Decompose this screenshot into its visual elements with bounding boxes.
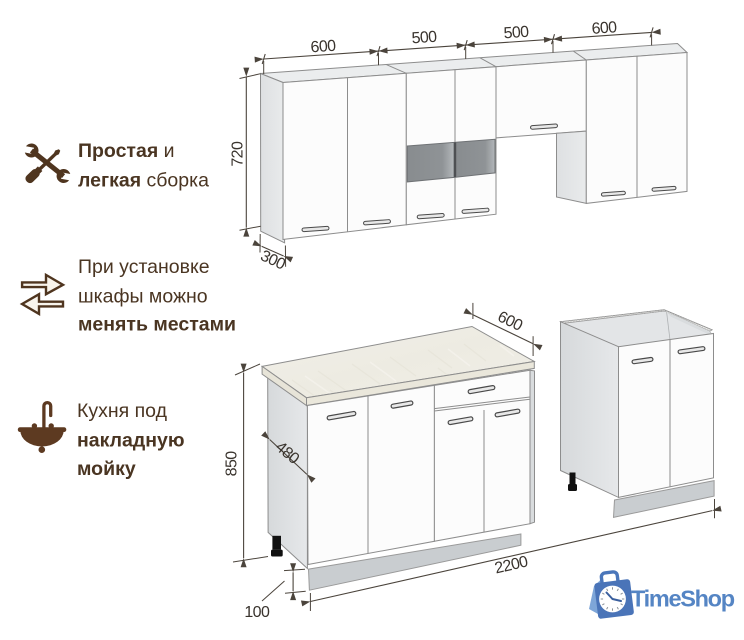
svg-text:500: 500 xyxy=(411,29,438,48)
svg-text:легкая сборка: легкая сборка xyxy=(78,170,209,192)
svg-text:100: 100 xyxy=(244,604,270,621)
svg-text:накладную: накладную xyxy=(77,430,185,452)
svg-text:шкафы можно: шкафы можно xyxy=(78,286,208,308)
svg-text:Простая и: Простая и xyxy=(78,140,175,162)
svg-text:При установке: При установке xyxy=(78,256,210,278)
svg-text:TimeShop: TimeShop xyxy=(631,586,735,612)
svg-text:850: 850 xyxy=(224,451,241,477)
svg-text:мойку: мойку xyxy=(77,458,136,480)
svg-text:Кухня под: Кухня под xyxy=(77,400,168,422)
svg-text:менять местами: менять местами xyxy=(78,314,236,336)
svg-text:600: 600 xyxy=(310,38,337,57)
svg-text:720: 720 xyxy=(230,141,247,167)
svg-text:600: 600 xyxy=(591,19,618,38)
svg-text:500: 500 xyxy=(503,24,530,43)
